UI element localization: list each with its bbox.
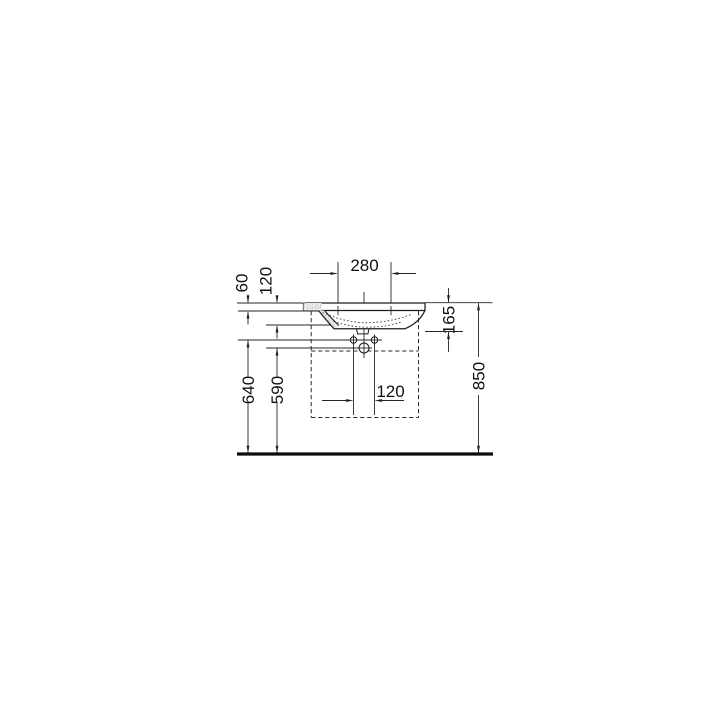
arrowhead — [331, 272, 339, 275]
drain-boss — [357, 329, 370, 334]
dimension-ceramic-edge: 165 — [440, 288, 459, 352]
bowl-interior-hidden-edge-upper — [323, 313, 412, 323]
bowl-wall-section-hatch — [319, 311, 340, 330]
dimension-tap-hole-spacing: 280 — [310, 256, 416, 275]
arrowhead — [447, 295, 450, 303]
dim-label-590: 590 — [268, 376, 287, 404]
technical-drawing-canvas: 280 60 120 165 640 590 — [0, 0, 720, 720]
dimension-drain-height: 590 — [268, 348, 287, 453]
dim-label-60: 60 — [233, 274, 252, 293]
tap-hole-cross-right — [386, 306, 397, 315]
washbasin-front-view — [304, 303, 426, 355]
dim-label-280: 280 — [350, 256, 378, 275]
bowl-interior-hidden-edge-lower — [334, 322, 403, 328]
dim-label-640: 640 — [239, 376, 258, 404]
arrowhead — [247, 296, 250, 304]
dimension-rim-to-tap-centerline: 60 — [233, 274, 252, 325]
washbasin-dimension-drawing: 280 60 120 165 640 590 — [0, 0, 720, 720]
arrowhead — [276, 296, 279, 304]
arrowhead — [477, 446, 480, 454]
arrowhead — [247, 446, 250, 454]
arrowhead — [346, 399, 354, 402]
arrowhead — [391, 272, 399, 275]
dimension-fixing-height: 640 — [239, 340, 258, 453]
dim-label-120-spacing: 120 — [376, 382, 404, 401]
dim-label-165: 165 — [440, 306, 459, 334]
dim-label-850: 850 — [470, 362, 489, 390]
dimension-fixing-hole-spacing: 120 — [322, 382, 405, 402]
washbasin-rim — [304, 303, 426, 311]
tap-hole-cross-left — [333, 306, 344, 315]
arrowhead — [276, 446, 279, 454]
dim-label-120-depth: 120 — [257, 267, 276, 295]
rim-section-hatch — [304, 303, 322, 311]
dimension-rim-height: 850 — [470, 303, 489, 454]
siphon-space-dashed-box — [311, 311, 418, 418]
